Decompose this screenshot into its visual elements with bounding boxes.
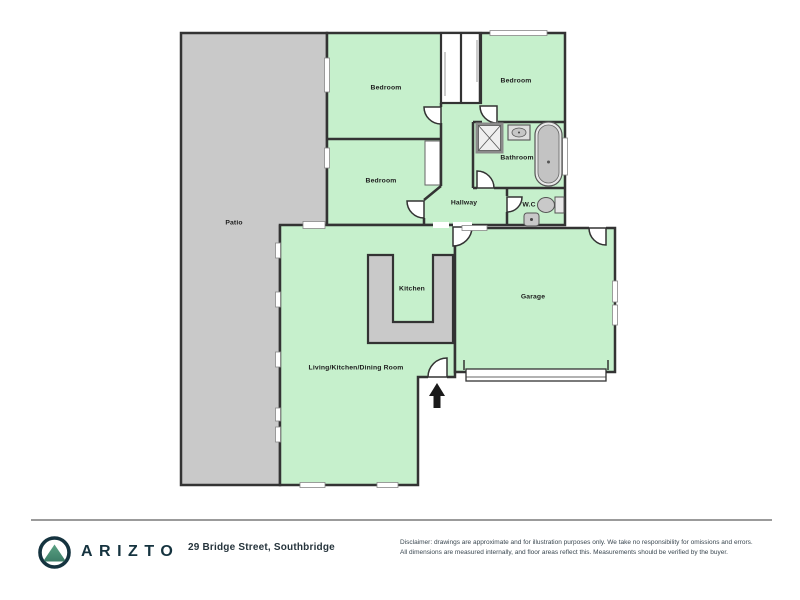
window (377, 483, 398, 488)
room-label-bedroom-top: Bedroom (371, 85, 402, 92)
window (276, 352, 281, 367)
disclaimer-text: Disclaimer: drawings are approximate and… (400, 538, 778, 557)
room-label-bedroom-mid: Bedroom (366, 178, 397, 185)
window (276, 427, 281, 442)
property-address: 29 Bridge Street, Southbridge (188, 542, 335, 553)
toilet (538, 197, 565, 213)
closet-block (441, 33, 481, 103)
room-label-wc: W.C (522, 202, 535, 209)
brand-name: ARIZTO (81, 543, 179, 561)
brand-logo-row: ARIZTO (38, 535, 179, 569)
window (276, 243, 281, 258)
bathtub (535, 122, 562, 186)
room-label-patio: Patio (225, 220, 242, 227)
window (325, 148, 330, 168)
window (276, 408, 281, 421)
shower (477, 124, 502, 152)
window (276, 292, 281, 307)
disclaimer-line-1: Disclaimer: drawings are approximate and… (400, 539, 753, 546)
wardrobe (425, 141, 440, 185)
entrance-arrow-icon (429, 383, 445, 408)
room-label-garage: Garage (521, 294, 545, 301)
room-label-bedroom-right: Bedroom (501, 78, 532, 85)
room-label-living: Living/Kitchen/Dining Room (309, 365, 404, 372)
window (613, 305, 618, 325)
window (613, 281, 618, 302)
floor-plan-page: Patio Bedroom Bedroom Bedroom Hallway Ba… (0, 0, 800, 600)
window (300, 483, 325, 488)
window (490, 31, 547, 36)
bathroom-sink (508, 125, 530, 140)
room-label-bathroom: Bathroom (500, 155, 533, 162)
window (303, 222, 325, 229)
arizto-mountain-logo-icon (38, 536, 71, 569)
window (563, 138, 568, 175)
window (462, 226, 487, 231)
room-label-kitchen: Kitchen (399, 286, 425, 293)
room-label-hallway: Hallway (451, 200, 477, 207)
disclaimer-line-2: All dimensions are measured internally, … (400, 549, 728, 556)
window (325, 58, 330, 92)
wc-sink (524, 213, 539, 226)
footer-divider (31, 519, 772, 521)
